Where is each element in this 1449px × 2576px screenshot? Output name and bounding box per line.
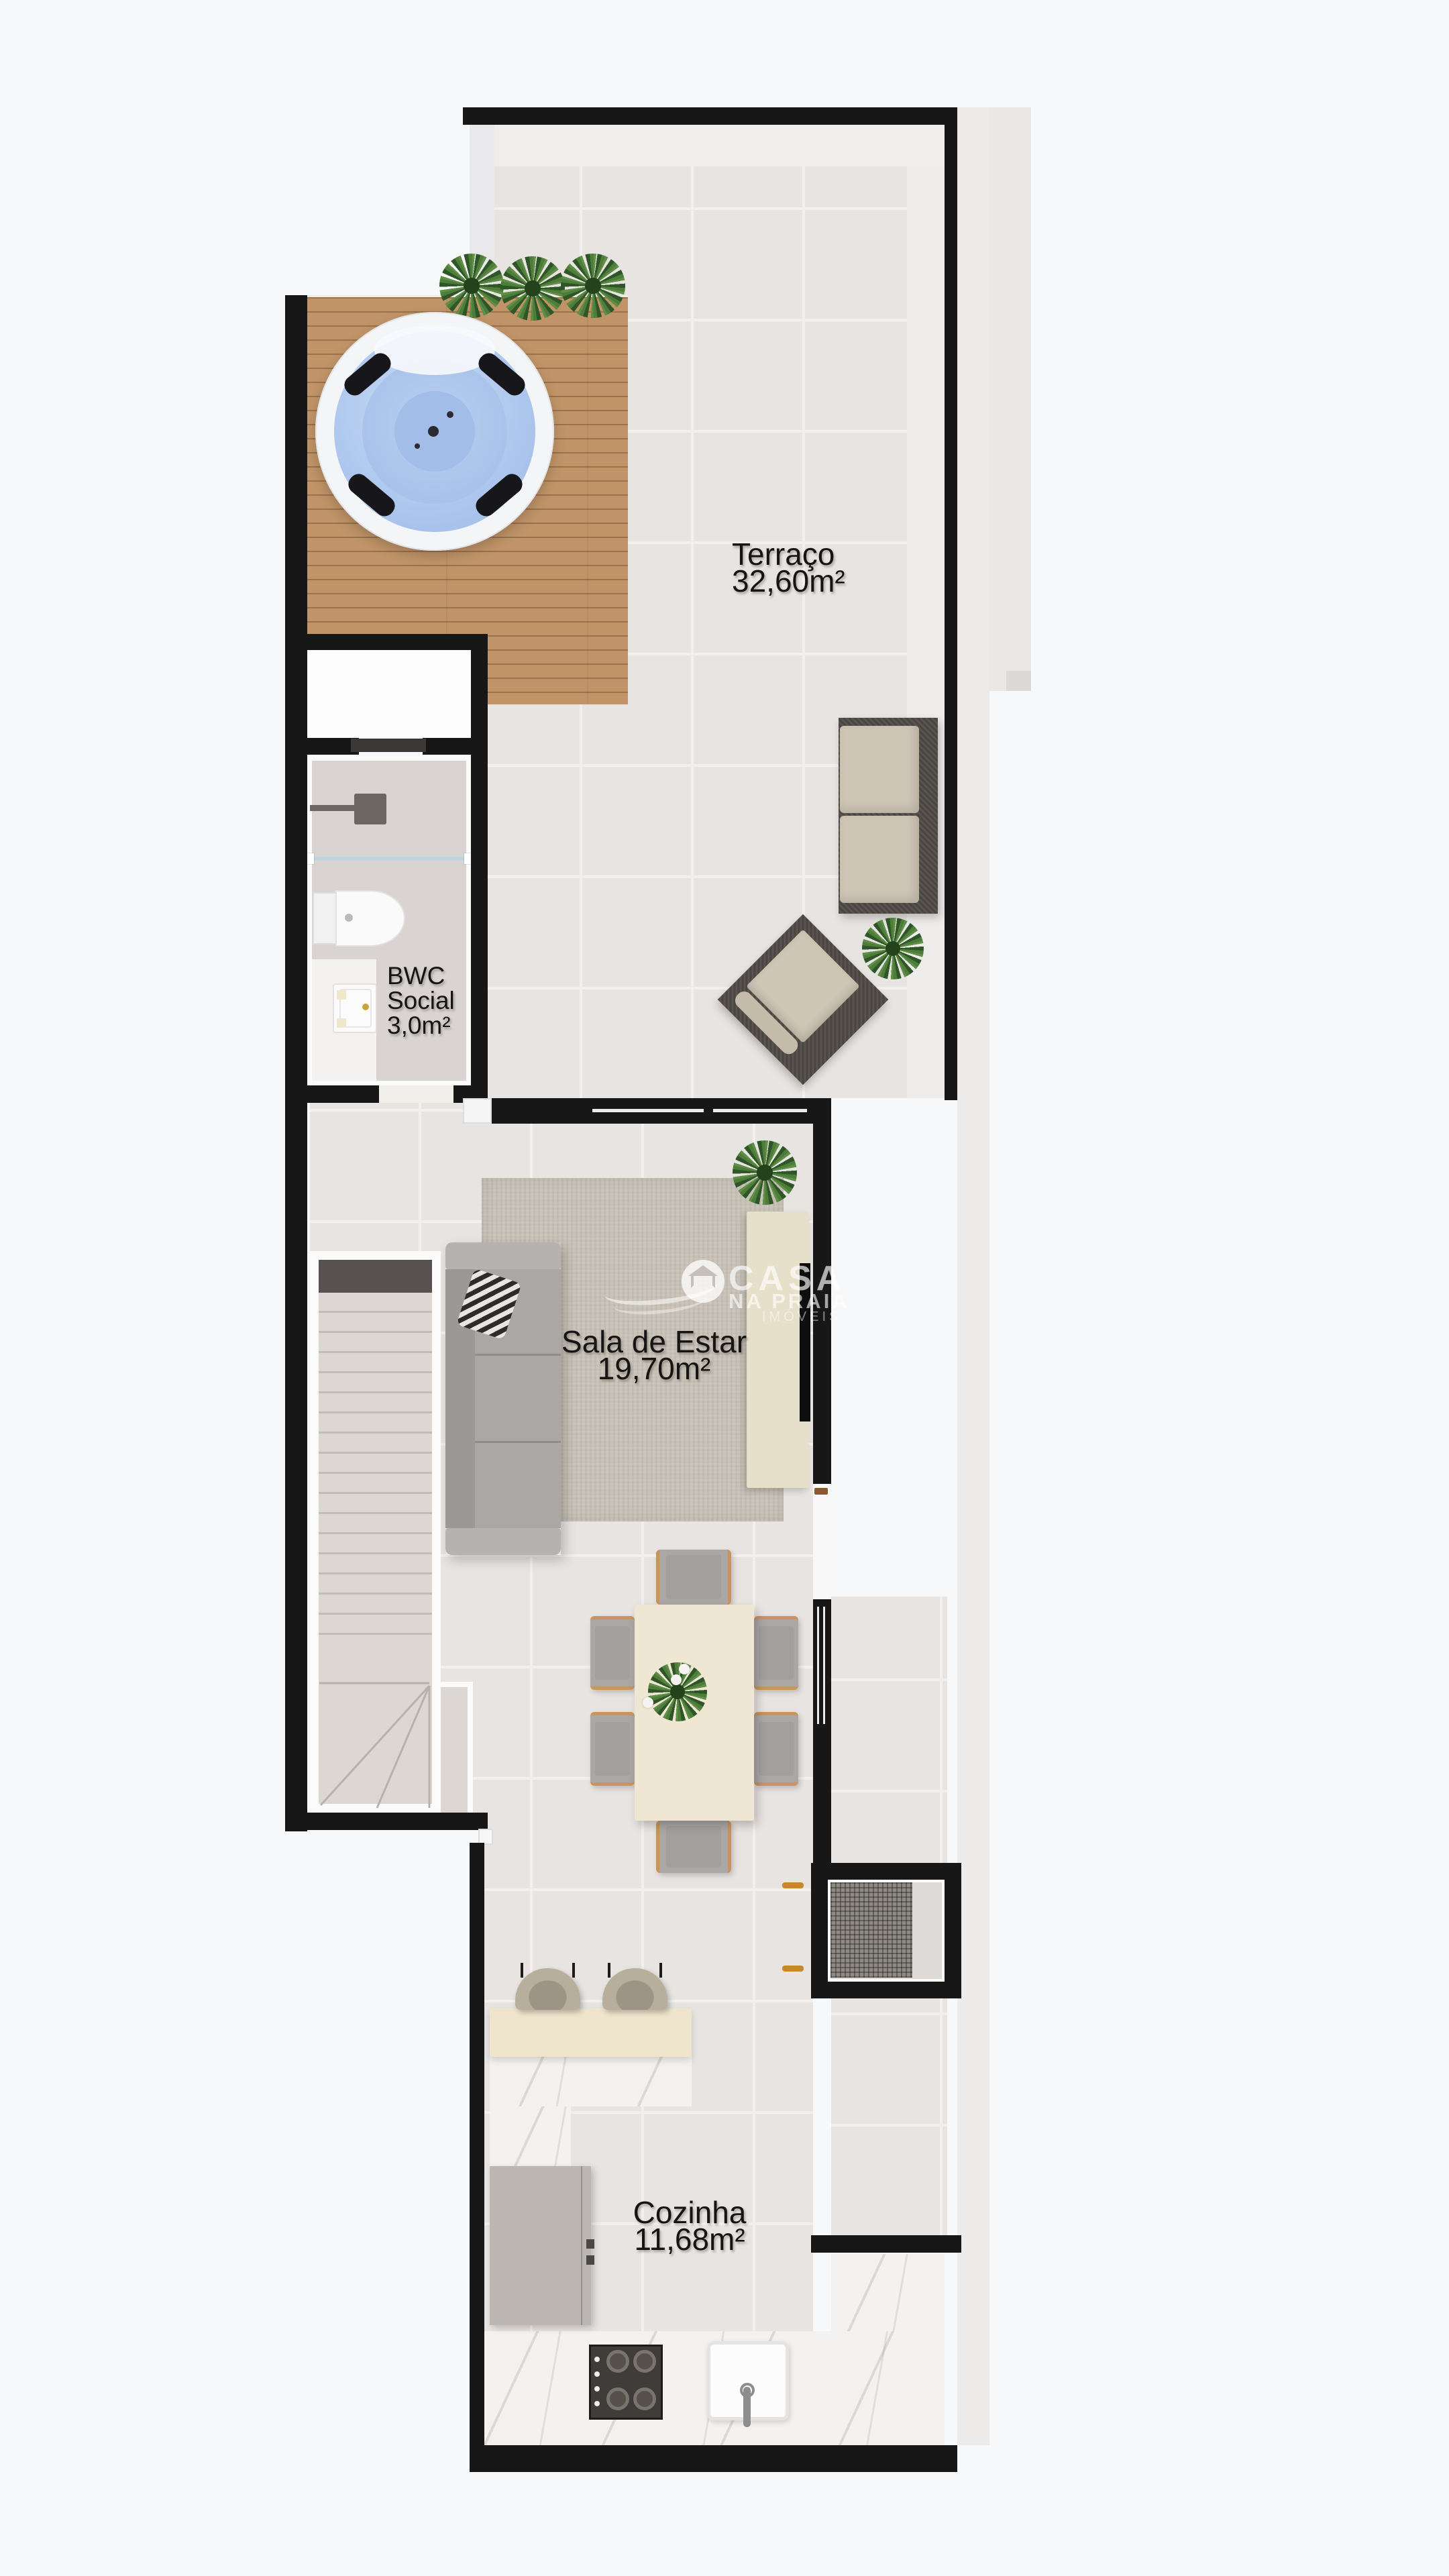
flower bbox=[679, 1664, 690, 1674]
chair-pad bbox=[666, 1555, 721, 1599]
flower bbox=[671, 1674, 682, 1685]
hot-tub-seat bbox=[374, 325, 495, 375]
toilet-flush bbox=[345, 914, 353, 922]
hot-tub-jet bbox=[428, 426, 439, 437]
dining-chair bbox=[656, 1821, 731, 1873]
exterior-walkway-strip bbox=[957, 107, 989, 2445]
plant-icon bbox=[561, 254, 625, 318]
glass-divider-end bbox=[307, 853, 314, 864]
table-plant-icon bbox=[648, 1662, 707, 1721]
terrace-sofa bbox=[839, 718, 938, 914]
house-icon bbox=[691, 1276, 715, 1288]
plant-icon bbox=[862, 918, 924, 979]
wall bbox=[285, 1813, 488, 1830]
terrace-sofa-cushion bbox=[840, 726, 919, 813]
plant-icon bbox=[500, 256, 565, 321]
burner-icon bbox=[633, 2387, 656, 2410]
peninsula-marble bbox=[490, 2057, 692, 2106]
stool-bracket bbox=[608, 1963, 610, 1978]
plant-icon bbox=[733, 1140, 797, 1205]
watermark: CASA NA PRAIA IMÓVEIS bbox=[597, 1254, 892, 1328]
terrace-sofa-cushion bbox=[840, 816, 919, 903]
sofa-armrest bbox=[445, 1528, 561, 1555]
condenser-grill bbox=[830, 1882, 912, 1978]
door-jamb bbox=[463, 1098, 492, 1124]
floor-plan: Terraço32,60m² BWCSocial3,0m² Sala de Es… bbox=[0, 0, 1449, 2576]
chair-pad bbox=[595, 1626, 631, 1680]
toilet-tank bbox=[313, 892, 337, 945]
room-area: 3,0m² bbox=[387, 1013, 455, 1038]
exterior-area bbox=[285, 1830, 478, 2445]
brand-subtitle: IMÓVEIS bbox=[762, 1309, 841, 1325]
burner-icon bbox=[633, 2350, 656, 2373]
wall bbox=[945, 107, 957, 1100]
terrace-curb bbox=[471, 125, 945, 166]
knob-icon bbox=[594, 2386, 600, 2392]
dining-chair bbox=[754, 1616, 798, 1690]
chair-pad bbox=[595, 1722, 631, 1776]
shower-glass-divider bbox=[314, 857, 467, 860]
wall bbox=[285, 634, 488, 650]
chair-pad bbox=[759, 1626, 794, 1680]
neighbor-step bbox=[1006, 671, 1031, 691]
stool-bracket bbox=[572, 1963, 575, 1978]
dining-chair bbox=[656, 1550, 731, 1605]
room-label-sala: Sala de Estar19,70m² bbox=[520, 1328, 788, 1382]
stair-winder-lines bbox=[310, 1674, 441, 1813]
dining-chair bbox=[590, 1616, 635, 1690]
room-name: BWC bbox=[387, 962, 445, 989]
kitchen-faucet-base bbox=[740, 2383, 755, 2398]
knob-icon bbox=[594, 2357, 600, 2362]
stair-landing bbox=[319, 1260, 432, 1293]
wall bbox=[813, 1599, 831, 1863]
door-handle-icon bbox=[782, 1966, 804, 1972]
stool-bracket bbox=[659, 1963, 662, 1978]
chair-pad bbox=[666, 1826, 721, 1868]
knob-icon bbox=[594, 2401, 600, 2406]
room-name-2: Social bbox=[387, 988, 455, 1013]
wall bbox=[423, 738, 488, 755]
bathroom-door-opening bbox=[379, 1085, 453, 1103]
soap-dish bbox=[337, 990, 346, 1000]
room-area: 32,60m² bbox=[732, 568, 845, 594]
shower-arm bbox=[310, 805, 354, 811]
burner-icon bbox=[606, 2387, 629, 2410]
kitchen-peninsula-counter bbox=[490, 2008, 692, 2057]
burner-icon bbox=[606, 2350, 629, 2373]
glass-divider-end bbox=[464, 853, 471, 864]
wall bbox=[463, 107, 957, 125]
glass-pane bbox=[592, 1109, 704, 1112]
glass-pane bbox=[817, 1607, 819, 1724]
room-label-cozinha: Cozinha11,68m² bbox=[555, 2199, 824, 2253]
soap-dish bbox=[337, 1018, 346, 1028]
sofa-armrest bbox=[445, 1242, 561, 1269]
shower-head bbox=[354, 794, 386, 824]
wall bbox=[285, 738, 359, 755]
door-opening bbox=[813, 1484, 831, 1599]
room-area: 11,68m² bbox=[555, 2226, 824, 2253]
house-icon bbox=[688, 1265, 718, 1276]
chair-pad bbox=[759, 1722, 794, 1776]
dining-chair bbox=[590, 1712, 635, 1786]
wall bbox=[811, 2235, 961, 2253]
sofa-seam bbox=[475, 1441, 561, 1443]
bathroom-door bbox=[351, 739, 426, 752]
refrigerator-handle bbox=[586, 2255, 594, 2265]
door-handle-icon bbox=[782, 1882, 804, 1888]
wall bbox=[285, 295, 307, 1831]
terrace-sliding-door bbox=[492, 1098, 815, 1124]
stair-winder-extension bbox=[441, 1682, 473, 1813]
glass-pane bbox=[823, 1607, 825, 1724]
plant-icon bbox=[439, 254, 504, 318]
wall bbox=[470, 1843, 484, 2472]
hot-tub-jet bbox=[415, 443, 420, 449]
knob-icon bbox=[594, 2371, 600, 2377]
peninsula-marble-column bbox=[490, 2106, 571, 2168]
void-room bbox=[307, 649, 471, 738]
neighbor-unit-floor bbox=[989, 107, 1031, 691]
faucet-icon bbox=[362, 1004, 369, 1010]
wall bbox=[470, 2445, 957, 2472]
room-area: 19,70m² bbox=[520, 1355, 788, 1382]
hot-tub-jet bbox=[447, 411, 453, 418]
room-label-bwc: BWCSocial3,0m² bbox=[387, 963, 455, 1038]
dining-chair bbox=[754, 1712, 798, 1786]
door-hinge-icon bbox=[814, 1488, 828, 1495]
stair-treads bbox=[319, 1293, 432, 1648]
wall bbox=[471, 634, 488, 1099]
room-label-terraco: Terraço32,60m² bbox=[732, 541, 845, 594]
cooktop bbox=[589, 2345, 663, 2420]
hot-tub bbox=[315, 312, 554, 551]
glass-pane bbox=[713, 1109, 807, 1112]
flower bbox=[643, 1697, 653, 1708]
wall bbox=[285, 1085, 379, 1103]
stool-bracket bbox=[521, 1963, 523, 1978]
